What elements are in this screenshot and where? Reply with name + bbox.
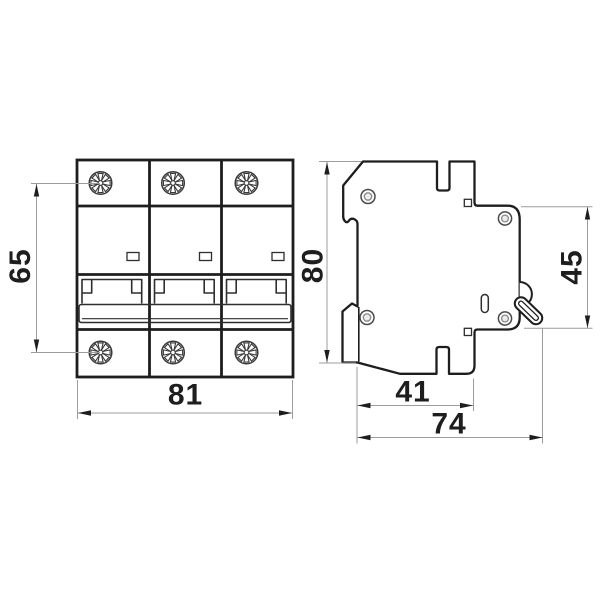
rivet-icon <box>498 312 511 325</box>
front-view <box>77 160 293 377</box>
screw-icon <box>162 172 185 195</box>
step-notch-bottom <box>464 328 471 335</box>
side-view <box>343 162 537 374</box>
screw-icon <box>162 341 185 364</box>
rivet-icon <box>498 212 511 225</box>
dimension-label-41: 41 <box>395 376 430 409</box>
rivet-icon <box>361 190 375 204</box>
screw-icon <box>235 172 258 195</box>
dimension-label-45: 45 <box>556 249 589 284</box>
face-slot <box>481 295 488 313</box>
step-notch-top <box>464 199 471 206</box>
dimension-81: 81 <box>78 379 293 420</box>
rivet-icon <box>360 311 374 325</box>
toggle-lever <box>520 282 536 318</box>
dimension-label-65: 65 <box>4 248 37 283</box>
technical-drawing: 65 81 80 45 <box>0 0 600 600</box>
dimension-label-81: 81 <box>168 379 203 412</box>
dimension-label-74: 74 <box>431 408 466 441</box>
dimensional-drawing-canvas: 65 81 80 45 <box>0 0 600 600</box>
dimension-label-80: 80 <box>297 248 330 283</box>
screw-icon <box>235 341 258 364</box>
